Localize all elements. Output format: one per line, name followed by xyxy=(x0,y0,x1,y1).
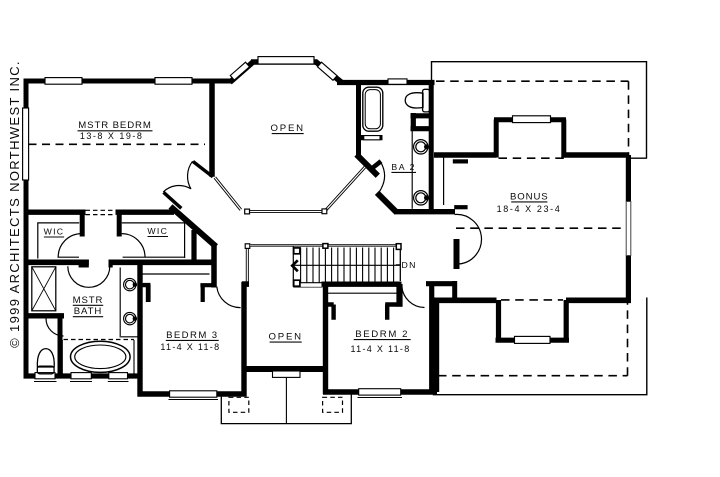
svg-text:© 1999 ARCHITECTS NORTHWEST IN: © 1999 ARCHITECTS NORTHWEST INC. xyxy=(7,60,22,348)
svg-text:MSTR: MSTR xyxy=(73,295,104,306)
svg-text:WIC: WIC xyxy=(44,227,65,237)
svg-text:WIC: WIC xyxy=(147,226,168,236)
svg-text:OPEN: OPEN xyxy=(271,123,305,134)
svg-text:BA 2: BA 2 xyxy=(391,162,416,172)
svg-text:BEDRM 3: BEDRM 3 xyxy=(166,330,218,341)
svg-text:MSTR BEDRM: MSTR BEDRM xyxy=(78,120,152,131)
svg-text:11-4 X 11-8: 11-4 X 11-8 xyxy=(160,342,220,352)
svg-text:BONUS: BONUS xyxy=(510,191,549,202)
svg-text:11-4 X 11-8: 11-4 X 11-8 xyxy=(351,344,411,354)
svg-text:OPEN: OPEN xyxy=(269,332,303,343)
svg-text:DN: DN xyxy=(402,260,417,270)
svg-text:18-4 X 23-4: 18-4 X 23-4 xyxy=(497,204,562,214)
svg-text:13-8 X 19-8: 13-8 X 19-8 xyxy=(80,131,144,141)
svg-text:BEDRM 2: BEDRM 2 xyxy=(355,329,409,340)
svg-text:BATH: BATH xyxy=(74,306,102,317)
